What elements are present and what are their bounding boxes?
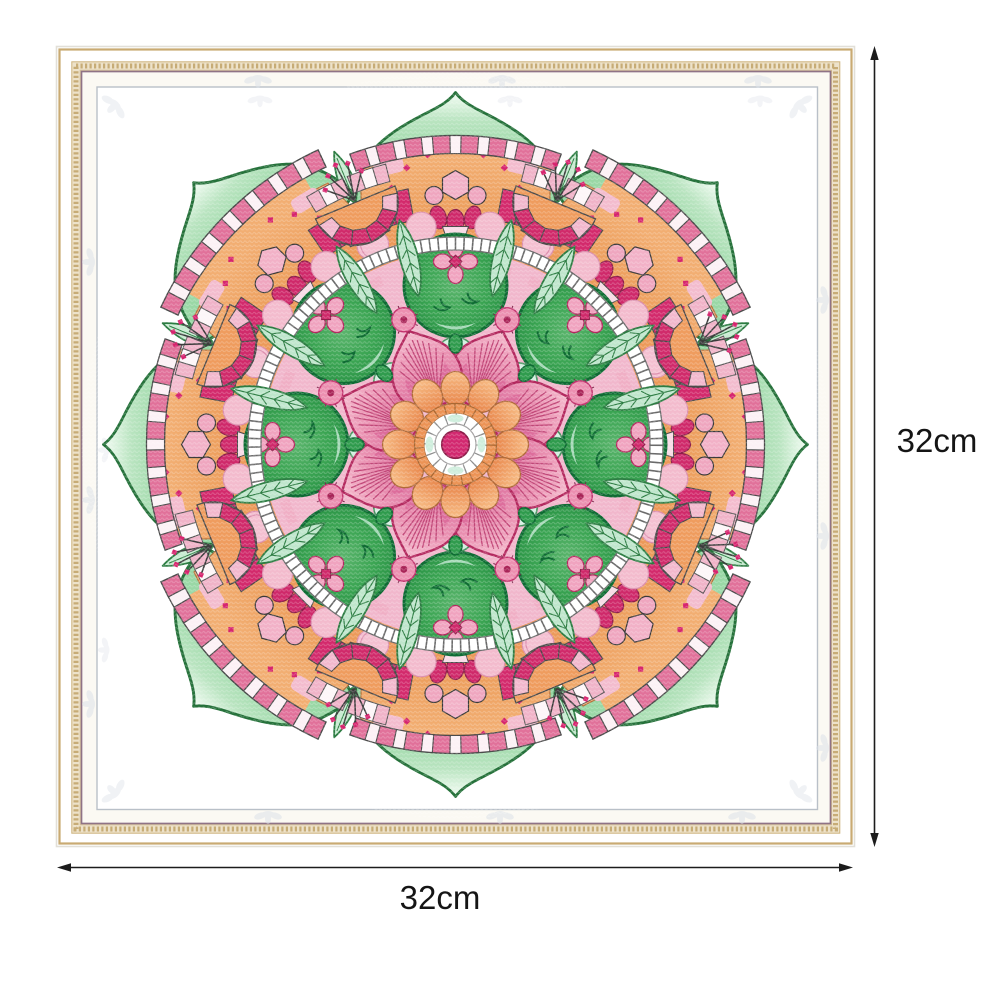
- svg-text:32cm: 32cm: [897, 422, 978, 459]
- svg-text:32cm: 32cm: [400, 879, 481, 916]
